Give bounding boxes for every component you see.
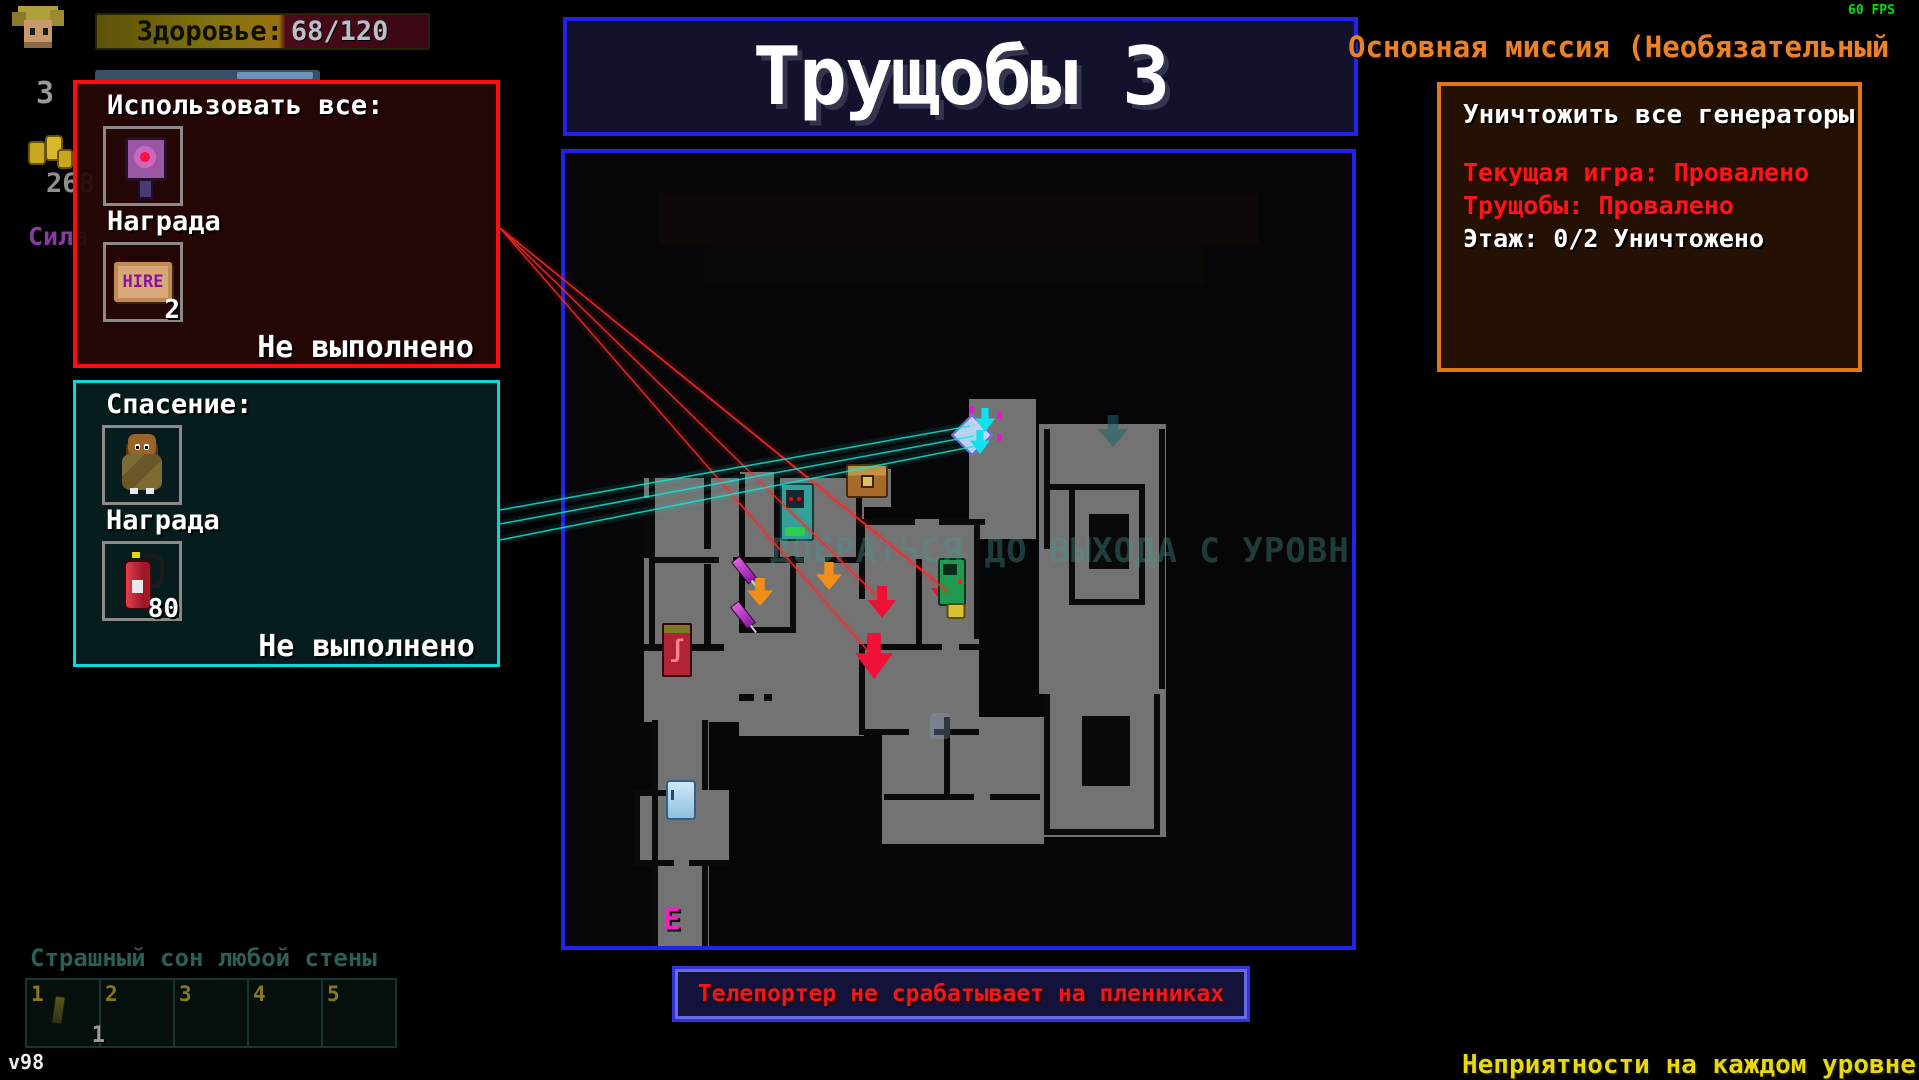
inventory-slot-4[interactable]: 4 [249, 980, 323, 1046]
quest-title: Использовать все: [107, 90, 383, 121]
reward-slot: 80 [102, 541, 182, 621]
minimap-box: ДОБРАТЬСЯ ДО ВЫХОДА С УРОВНЯ E [561, 149, 1356, 950]
quest-title: Спасение: [106, 389, 252, 420]
player-avatar [10, 4, 66, 60]
fps-counter: 60 FPS [1848, 3, 1895, 18]
health-bar: Здоровье: 68/120 [95, 13, 430, 50]
level-title-box: Трущобы 3 [563, 17, 1358, 136]
arrow-teal-icon [1098, 415, 1128, 447]
mutator-note: Неприятности на каждом уровне [1462, 1050, 1916, 1080]
hire-sign-icon: HIRE [114, 262, 172, 302]
exit-marker-icon [957, 406, 1005, 462]
mission-objective: Уничтожить все генераторы [1463, 100, 1854, 130]
arrow-red-big-icon [855, 633, 893, 679]
character-class-name: Страшный сон любой стены [30, 944, 377, 972]
reward-count: 2 [164, 295, 180, 325]
quest-item-slot [102, 425, 182, 505]
mission-status-line: Этаж: 0/2 Уничтожено [1463, 222, 1809, 255]
health-value: 68/120 [291, 16, 389, 47]
vendor-red-icon [662, 623, 692, 677]
mission-panel: Уничтожить все генераторы Текущая игра: … [1437, 82, 1862, 372]
money-icon [26, 128, 78, 172]
health-label: Здоровье: [137, 16, 283, 47]
player-level: 3 [36, 76, 54, 111]
teleporter-device-icon [123, 137, 163, 195]
exit-letter-icon: E [663, 903, 681, 938]
minimap-watermark: ДОБРАТЬСЯ ДО ВЫХОДА С УРОВНЯ [770, 531, 1356, 571]
inventory-slot-2[interactable]: 2 [101, 980, 175, 1046]
slot-number: 1 [31, 982, 44, 1006]
game-screen: { "hud": { "fps": "60 FPS", "version": "… [0, 0, 1919, 1079]
quest-status: Не выполнено [258, 629, 475, 664]
fridge-icon [666, 780, 696, 820]
version-label: v98 [8, 1050, 44, 1074]
reward-count: 80 [148, 594, 179, 624]
mission-status-line: Текущая игра: Провалено [1463, 156, 1809, 189]
reward-slot: HIRE 2 [103, 242, 183, 322]
syringe-item-icon [51, 995, 66, 1024]
npc-icon [930, 713, 950, 739]
quest-item-slot [103, 126, 183, 206]
slot-number: 3 [179, 982, 192, 1006]
gorilla-icon [117, 434, 167, 496]
inventory-bar: 112345 [25, 978, 397, 1048]
quest-panel-use-all: Использовать все: Награда HIRE 2 Не выпо… [73, 80, 500, 368]
mission-header: Основная миссия (Необязательный [1348, 30, 1889, 64]
syringe-icon [730, 601, 756, 630]
syringe-icon [731, 556, 757, 585]
hire-sign-text: HIRE [123, 272, 164, 292]
inventory-slot-3[interactable]: 3 [175, 980, 249, 1046]
arrow-red-icon [868, 586, 896, 618]
mission-status-line: Трущобы: Провалено [1463, 189, 1809, 222]
slot-number: 2 [105, 982, 118, 1006]
item-yellow-icon [947, 603, 966, 619]
quest-status: Не выполнено [257, 330, 474, 365]
reward-label: Награда [107, 206, 221, 237]
notification-toast: Телепортер не срабатывает на пленниках [672, 966, 1250, 1022]
inventory-slot-5[interactable]: 5 [323, 980, 395, 1046]
slot-number: 5 [327, 982, 340, 1006]
slot-number: 4 [253, 982, 266, 1006]
inventory-slot-1[interactable]: 11 [27, 980, 101, 1046]
minimap: ДОБРАТЬСЯ ДО ВЫХОДА С УРОВНЯ E [565, 153, 1352, 946]
toast-text: Телепортер не срабатывает на пленниках [698, 981, 1224, 1007]
mission-status-lines: Текущая игра: ПроваленоТрущобы: Провален… [1463, 156, 1809, 255]
quest-panel-rescue: Спасение: Награда 80 Не выполнено [73, 380, 500, 667]
chest-icon [846, 464, 888, 498]
level-title: Трущобы 3 [753, 30, 1168, 123]
reward-label: Награда [106, 505, 220, 536]
